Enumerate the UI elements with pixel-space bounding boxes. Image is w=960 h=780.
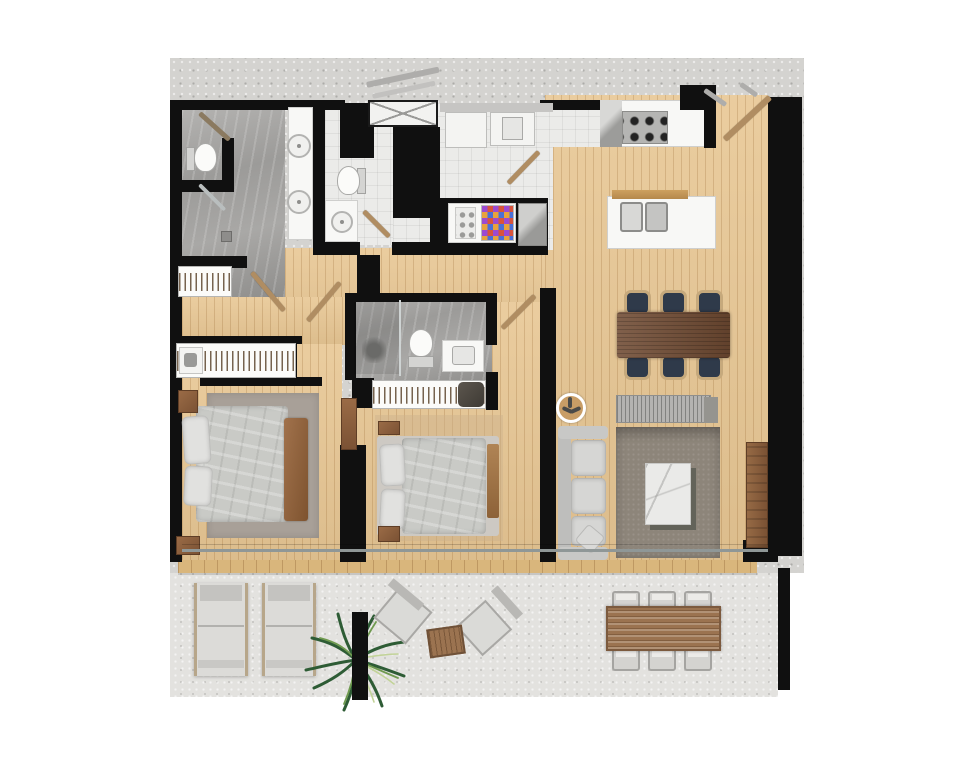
kitchen-corner-cabinet [600, 100, 622, 147]
ensuite-plant-icon [362, 335, 386, 363]
ensuite-toilet-icon [409, 329, 433, 357]
master-pillow-icon-2 [183, 465, 213, 506]
hall-closet [178, 266, 232, 297]
terrace-slider-window [182, 549, 768, 552]
outdoor-chair-icon-4 [612, 648, 640, 671]
sideboard [616, 395, 711, 423]
master-bed-throw [284, 418, 308, 521]
wall-ensuite-right [486, 293, 497, 345]
stove-icon [622, 111, 668, 144]
sun-lounger-headrest [200, 585, 242, 601]
wall-right [768, 97, 802, 556]
master-pillow-icon [181, 415, 211, 465]
wall-wardrobe-bottom [200, 377, 322, 386]
laundry-cabinet [518, 203, 547, 246]
sofa-back [558, 426, 571, 560]
bedroom2-pillow-icon-2 [379, 488, 406, 529]
terrace-slider-frame [182, 544, 768, 545]
master-nightstand [178, 390, 198, 413]
island-sink-icon-2 [645, 202, 668, 232]
sun-lounger-line [198, 625, 244, 627]
sofa-cushion [571, 440, 606, 476]
sun-lounger-foot [198, 660, 244, 668]
outdoor-chair-icon-6 [684, 648, 712, 671]
fan-blade-icon [568, 397, 572, 408]
sofa-armrest [558, 426, 608, 439]
wall-hall-top-a [313, 242, 360, 255]
island-sink-icon [620, 202, 643, 232]
sofa-cushion-2 [571, 478, 606, 514]
laundry-counter-top-strip [440, 103, 553, 112]
master-nightstand-2 [176, 536, 200, 555]
bedroom2-nightstand-2 [378, 526, 400, 542]
pantry-goods-icon [481, 205, 514, 241]
terrace-edge-shadow [178, 573, 757, 575]
duffel-bag-icon [458, 382, 484, 407]
sideboard-end [704, 397, 718, 423]
egg-tray-icon [455, 207, 476, 239]
bedroom2-bed [402, 438, 486, 534]
floor-plan-image [0, 0, 960, 780]
sun-lounger-headrest-2 [268, 585, 310, 601]
guest-sink-icon [331, 211, 353, 233]
vanity-sink-icon-2 [287, 190, 311, 214]
bedroom2-pillow-icon [379, 443, 406, 486]
outdoor-dining-table [606, 606, 721, 651]
wall-left [170, 100, 182, 562]
guest-toilet-icon [337, 166, 360, 195]
dining-table [617, 312, 730, 358]
terrace-side-table-icon [426, 625, 466, 659]
island-wood-bar [612, 190, 688, 199]
toilet-icon [194, 143, 217, 172]
master-bed [196, 406, 288, 522]
bedroom2-nightstand [378, 421, 400, 435]
wardrobe-item-icon [184, 353, 197, 367]
service-shaft-icon [368, 100, 438, 127]
wall-vanity-right [313, 105, 325, 245]
wall-above-vanity [288, 100, 345, 107]
terrace-column [352, 612, 368, 700]
vanity-sink-icon [287, 134, 311, 158]
vanity-counter [288, 107, 313, 240]
coffee-table [645, 463, 691, 525]
washer-door-icon [502, 117, 523, 140]
outdoor-chair-icon-5 [648, 648, 676, 671]
tv-console [746, 442, 768, 548]
master-door-panel [341, 398, 357, 450]
terrace-right-wall [778, 568, 790, 690]
shower-drain-icon [221, 231, 232, 242]
ensuite-toilet-tank-icon [408, 356, 434, 368]
ensuite-shower-glass [399, 300, 401, 376]
wall-living-divider [540, 288, 556, 562]
wall-hall-stub [357, 255, 380, 302]
wall-ensuite-right-low [486, 372, 498, 410]
bedroom2-bench [487, 444, 499, 518]
dryer-icon [445, 112, 487, 148]
ensuite-sink-icon [452, 346, 475, 365]
